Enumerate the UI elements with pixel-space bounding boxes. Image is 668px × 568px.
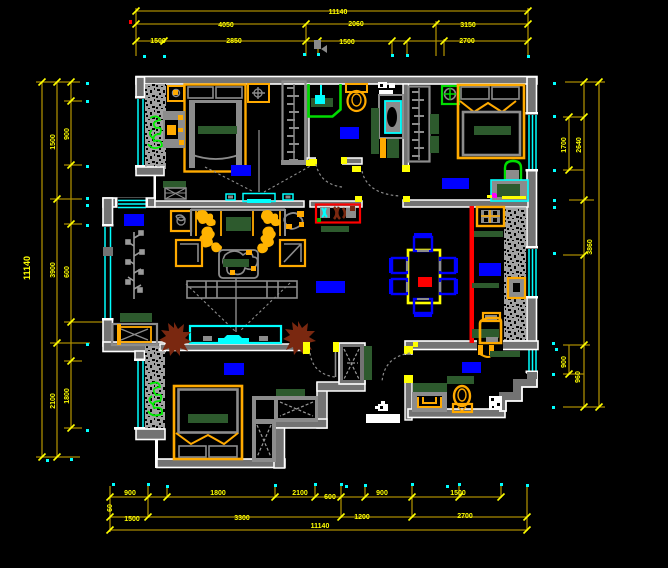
svg-text:60: 60: [107, 504, 114, 512]
svg-text:3150: 3150: [460, 22, 476, 29]
svg-text:4050: 4050: [218, 22, 234, 29]
svg-text:600: 600: [64, 266, 71, 278]
svg-text:1800: 1800: [210, 490, 226, 497]
svg-text:900: 900: [376, 490, 388, 497]
svg-text:1500: 1500: [124, 516, 140, 523]
svg-text:2850: 2850: [226, 38, 242, 45]
svg-text:3900: 3900: [50, 262, 57, 278]
svg-text:2060: 2060: [348, 21, 364, 28]
svg-text:2700: 2700: [459, 38, 475, 45]
svg-text:3300: 3300: [234, 515, 250, 522]
svg-text:900: 900: [124, 490, 136, 497]
svg-text:1500: 1500: [450, 490, 466, 497]
svg-text:2100: 2100: [50, 393, 57, 409]
svg-text:1800: 1800: [64, 388, 71, 404]
svg-text:11140: 11140: [311, 523, 330, 530]
svg-text:900: 900: [64, 128, 71, 140]
svg-text:2640: 2640: [576, 137, 583, 153]
svg-text:600: 600: [324, 494, 336, 501]
svg-text:1500: 1500: [150, 38, 166, 45]
svg-text:900: 900: [561, 356, 568, 368]
svg-text:11140: 11140: [22, 256, 32, 280]
svg-text:3860: 3860: [587, 239, 594, 255]
svg-text:960: 960: [575, 371, 582, 383]
svg-text:2700: 2700: [457, 513, 473, 520]
svg-text:2100: 2100: [292, 490, 308, 497]
svg-text:1500: 1500: [50, 134, 57, 150]
svg-text:1200: 1200: [354, 514, 370, 521]
svg-text:11140: 11140: [329, 9, 348, 16]
svg-text:1500: 1500: [339, 39, 355, 46]
svg-text:1700: 1700: [561, 137, 568, 153]
